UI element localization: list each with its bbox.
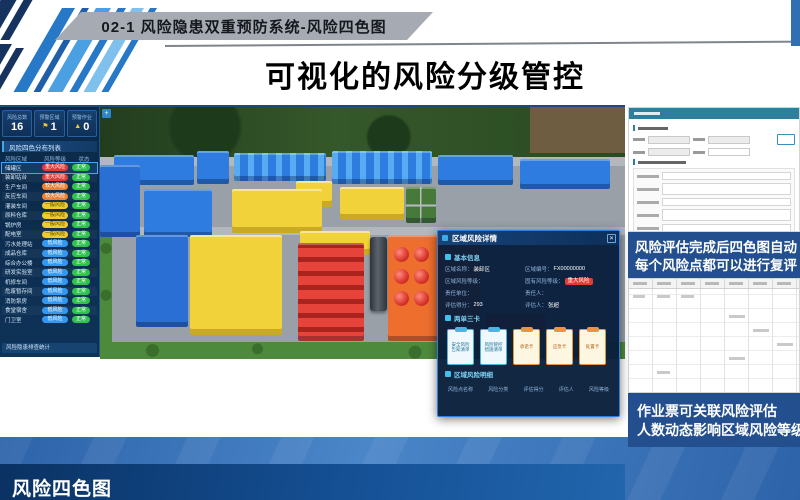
field-label-placeholder (637, 227, 659, 230)
form-panel (633, 168, 795, 232)
info-field: 区域名称 装卸区 (445, 265, 525, 273)
info-card[interactable]: 风险管控措施清单 (480, 329, 507, 365)
storage-tank[interactable] (394, 269, 409, 284)
risk-list: 储罐区 重大风险 正常 装卸站台 重大风险 正常 生产车间 较大风险 正常 (2, 163, 97, 325)
note-auto-update: 风险评估完成后四色图自动 每个风险点都可以进行复评 (628, 232, 800, 278)
building-blue[interactable] (332, 151, 432, 184)
info-field: 责任单位 (445, 289, 525, 297)
card-label: 处置卡 (584, 344, 602, 350)
storage-tank[interactable] (414, 247, 429, 262)
panel-title-bar: 区域风险详情 ✕ (438, 231, 619, 245)
risk-list-row[interactable]: 研发实验室 低风险 正常 (2, 268, 97, 278)
field-value: FX00000000 (554, 266, 586, 272)
field-label: 责任单位 (445, 289, 473, 297)
section-title: 两单三卡 (454, 313, 480, 323)
status-badge: 正常 (72, 240, 90, 247)
risk-level-badge: 重大风险 (42, 174, 68, 181)
info-card[interactable]: 承诺卡 (513, 329, 540, 365)
card-label: 承诺卡 (518, 344, 536, 350)
field-value: 重大风险 (565, 278, 593, 285)
region-name: 生产车间 (2, 183, 38, 191)
note-line: 风险评估完成后四色图自动 (635, 239, 800, 257)
building-blue[interactable] (520, 159, 610, 189)
section-cards: 两单三卡 (445, 313, 612, 323)
risk-level-badge: 一般风险 (42, 221, 68, 228)
building-blue[interactable] (100, 165, 140, 237)
text-input[interactable] (662, 198, 791, 206)
status-badge: 正常 (72, 297, 90, 304)
region-name: 装卸站台 (2, 173, 38, 181)
close-icon[interactable]: ✕ (607, 234, 616, 243)
cards-row: 安全风险告知清单 风险管控措施清单 承诺卡 应急卡 (445, 326, 612, 365)
risk-level-badge: 低风险 (42, 297, 68, 304)
status-badge: 正常 (72, 307, 90, 314)
storage-tank[interactable] (414, 269, 429, 284)
card-label: 安全风险告知清单 (448, 342, 473, 353)
status-badge: 正常 (72, 269, 90, 276)
flag-icon: ⚑ (42, 123, 48, 131)
section-accent (633, 159, 635, 165)
status-badge: 正常 (72, 231, 90, 238)
risk-level-badge: 低风险 (42, 259, 68, 266)
header-divider-line (165, 40, 800, 47)
status-badge: 正常 (72, 221, 90, 228)
alert-icon: ▲ (74, 123, 81, 131)
risk-list-row[interactable]: 锅炉房 一般风险 正常 (2, 220, 97, 230)
column-header-region: 风险区域 (2, 155, 38, 163)
form-header-text-placeholder (634, 112, 660, 115)
field-label-placeholder (637, 175, 659, 178)
building-blue[interactable] (136, 235, 188, 327)
risk-level-badge: 重大风险 (42, 164, 68, 171)
status-badge: 正常 (72, 316, 90, 323)
field-label-placeholder (633, 151, 645, 154)
map-zoom-button[interactable]: + (102, 109, 111, 118)
column-header-status: 状态 (72, 155, 96, 163)
detail-column: 评估人 (559, 386, 574, 393)
field-label: 区域名称 (445, 265, 473, 273)
region-name: 原料仓库 (2, 211, 38, 219)
basic-info-grid: 区域名称 装卸区 区域编号 FX00000000 区域风险等级 (445, 265, 612, 309)
map-terrain-trees (100, 225, 112, 342)
status-badge: 正常 (72, 288, 90, 295)
header-text-placeholder (633, 282, 647, 285)
region-name: 配电室 (2, 230, 38, 238)
building-red[interactable] (298, 243, 364, 341)
stat-risk-total[interactable]: 风险总数 16 (2, 110, 32, 137)
status-badge: 正常 (72, 278, 90, 285)
stat-value: 16 (11, 121, 23, 133)
detail-column: 评估得分 (523, 386, 543, 393)
info-card[interactable]: 安全风险告知清单 (447, 329, 474, 365)
stat-warning-regions[interactable]: 预警区域 ⚑ 1 (34, 110, 64, 137)
text-input[interactable] (662, 172, 791, 180)
header-text-placeholder (777, 282, 791, 285)
cell-text-placeholder (777, 343, 793, 346)
building-yellow[interactable] (340, 187, 404, 220)
section-text-placeholder (638, 127, 668, 130)
risk-list-row[interactable]: 消防泵房 低风险 正常 (2, 296, 97, 306)
region-name: 成品仓库 (2, 249, 38, 257)
building-blue[interactable] (234, 153, 326, 181)
detail-column: 风险分类 (488, 386, 508, 393)
field-label-placeholder (693, 151, 705, 154)
slide: 02-1 风险隐患双重预防系统-风险四色图 可视化的风险分级管控 风险总数 16… (0, 0, 800, 500)
header-text-placeholder (729, 282, 743, 285)
header-text-placeholder (681, 282, 695, 285)
risk-list-row[interactable]: 生产车间 较大风险 正常 (2, 182, 97, 192)
panel-icon (442, 235, 448, 241)
region-name: 储罐区 (2, 164, 38, 172)
detail-column: 风险等级 (589, 386, 609, 393)
region-name: 危废暂存间 (2, 287, 38, 295)
region-name: 灌装车间 (2, 202, 38, 210)
text-input[interactable] (662, 224, 791, 232)
section-text-placeholder (638, 161, 686, 164)
text-input[interactable] (648, 148, 690, 156)
info-field: 评估人 张超 (525, 301, 614, 309)
section-basic-info: 基本信息 (445, 252, 612, 262)
header-text-placeholder (705, 282, 719, 285)
status-badge: 正常 (72, 164, 90, 171)
risk-level-badge: 低风险 (42, 250, 68, 257)
field-label: 评估人 (525, 301, 547, 309)
field-value: 293 (474, 302, 483, 308)
region-name: 研发实验室 (2, 268, 38, 276)
risk-level-badge: 低风险 (42, 269, 68, 276)
status-badge: 正常 (72, 202, 90, 209)
chimney (370, 237, 387, 311)
risk-level-badge: 一般风险 (42, 231, 68, 238)
risk-list-row[interactable]: 门卫室 低风险 正常 (2, 315, 97, 325)
header-text-placeholder (753, 282, 767, 285)
risk-sidebar: 风险总数 16 预警区域 ⚑ 1 预警作业 ▲ 0 (0, 107, 100, 357)
section-detail: 区域风险明细 (445, 369, 612, 379)
risk-level-badge: 低风险 (42, 288, 68, 295)
risk-list-title: 风险四色分布列表 (2, 141, 97, 152)
storage-tank[interactable] (394, 247, 409, 262)
header-text-placeholder (657, 282, 671, 285)
sidebar-footer-label[interactable]: 风险隐患排查统计 (2, 343, 97, 353)
risk-list-row[interactable]: 配电室 一般风险 正常 (2, 230, 97, 240)
risk-list-row[interactable]: 污水处理站 低风险 正常 (2, 239, 97, 249)
query-button[interactable] (777, 134, 795, 145)
stat-value: 1 (51, 121, 57, 133)
text-input[interactable] (708, 136, 750, 144)
risk-list-row[interactable]: 危废暂存间 低风险 正常 (2, 287, 97, 297)
region-name: 食堂宿舍 (2, 306, 38, 314)
info-card[interactable]: 处置卡 (579, 329, 606, 365)
region-name: 门卫室 (2, 316, 38, 324)
risk-level-badge: 一般风险 (42, 202, 68, 209)
textarea-input[interactable] (662, 183, 791, 195)
risk-list-row[interactable]: 灌装车间 一般风险 正常 (2, 201, 97, 211)
field-label: 固有风险等级 (525, 277, 564, 285)
region-name: 机修车间 (2, 278, 38, 286)
field-value: 装卸区 (474, 265, 491, 273)
cell-text-placeholder (729, 315, 745, 318)
status-badge: 正常 (72, 183, 90, 190)
info-field: 固有风险等级 重大风险 (525, 277, 614, 285)
building-blue[interactable] (197, 151, 229, 184)
field-label: 责任人 (525, 289, 547, 297)
info-field: 区域编号 FX00000000 (525, 265, 614, 273)
storage-tank[interactable] (394, 291, 409, 306)
assessment-table-screenshot (628, 278, 800, 393)
map-terrain-field (530, 107, 625, 153)
field-label-placeholder (633, 138, 645, 141)
risk-level-badge: 一般风险 (42, 212, 68, 219)
field-label-placeholder (637, 201, 659, 204)
building-blue[interactable] (144, 189, 212, 237)
region-name: 反应车间 (2, 192, 38, 200)
section-banner: 02-1 风险隐患双重预防系统-风险四色图 (55, 12, 433, 40)
field-label: 区域编号 (525, 265, 553, 273)
assessment-form-screenshot (628, 107, 800, 232)
cell-text-placeholder (681, 295, 694, 298)
info-field: 评估得分 293 (445, 301, 525, 309)
section-title: 基本信息 (454, 252, 480, 262)
building-yellow[interactable] (190, 235, 282, 335)
risk-list-row[interactable]: 成品仓库 低风险 正常 (2, 249, 97, 259)
note-line: 人数动态影响区域风险等级 (637, 421, 800, 440)
risk-list-row[interactable]: 机修车间 低风险 正常 (2, 277, 97, 287)
field-label-placeholder (637, 214, 659, 217)
field-label-placeholder (637, 188, 659, 191)
cell-text-placeholder (657, 295, 670, 298)
region-name: 锅炉房 (2, 221, 38, 229)
cell-text-placeholder (657, 371, 670, 374)
risk-list-row[interactable]: 食堂宿舍 低风险 正常 (2, 306, 97, 316)
storage-tank[interactable] (414, 291, 429, 306)
map-garden (406, 187, 436, 223)
card-label: 风险管控措施清单 (481, 342, 506, 353)
risk-level-badge: 低风险 (42, 316, 68, 323)
risk-list-row[interactable]: 装卸站台 重大风险 正常 (2, 173, 97, 183)
status-badge: 正常 (72, 250, 90, 257)
status-badge: 正常 (72, 193, 90, 200)
note-work-permit: 作业票可关联风险评估 人数动态影响区域风险等级 (628, 393, 800, 447)
field-value: 张超 (548, 301, 559, 309)
stat-value: 0 (83, 121, 89, 133)
risk-level-badge: 低风险 (42, 307, 68, 314)
cell-text-placeholder (633, 295, 645, 298)
field-label: 区域风险等级 (445, 277, 484, 285)
section-accent (633, 125, 635, 131)
risk-list-row[interactable]: 原料仓库 一般风险 正常 (2, 211, 97, 221)
risk-list-row[interactable]: 储罐区 重大风险 正常 (2, 163, 97, 173)
field-label: 评估得分 (445, 301, 473, 309)
risk-level-badge: 较大风险 (42, 193, 68, 200)
section-icon (445, 254, 451, 260)
caption-band: 风险四色图 一张图显示四个等级的风险区域，并可以点击查看该区域风险详情。 (0, 464, 625, 500)
note-line: 每个风险点都可以进行复评 (635, 257, 800, 275)
stats-row: 风险总数 16 预警区域 ⚑ 1 预警作业 ▲ 0 (2, 110, 97, 137)
info-card[interactable]: 应急卡 (546, 329, 573, 365)
cell-text-placeholder (753, 329, 769, 332)
form-header-bar (629, 108, 799, 119)
risk-list-row[interactable]: 综合办公楼 低风险 正常 (2, 258, 97, 268)
page-title: 可视化的风险分级管控 (185, 52, 665, 96)
section-icon (445, 315, 451, 321)
column-header-level: 风险等级 (38, 155, 72, 163)
section-icon (445, 371, 451, 377)
form-section-bar (633, 159, 795, 165)
risk-list-row[interactable]: 反应车间 较大风险 正常 (2, 192, 97, 202)
region-name: 消防泵房 (2, 297, 38, 305)
panel-title: 区域风险详情 (452, 233, 497, 244)
status-badge: 正常 (72, 174, 90, 181)
section-banner-label: 02-1 风险隐患双重预防系统-风险四色图 (101, 16, 386, 37)
risk-level-badge: 低风险 (42, 278, 68, 285)
textarea-input[interactable] (662, 209, 791, 221)
risk-list-header: 风险区域 风险等级 状态 (2, 154, 97, 163)
select-input[interactable] (708, 148, 750, 156)
region-risk-panel: 区域风险详情 ✕ 基本信息 区域名称 装卸区 (437, 230, 620, 417)
card-label: 应急卡 (551, 344, 569, 350)
text-input[interactable] (648, 136, 690, 144)
status-badge: 正常 (72, 212, 90, 219)
app-screenshot: 风险总数 16 预警区域 ⚑ 1 预警作业 ▲ 0 (0, 105, 625, 357)
building-yellow[interactable] (232, 189, 322, 233)
stat-warning-jobs[interactable]: 预警作业 ▲ 0 (67, 110, 97, 137)
form-section-bar (633, 125, 795, 131)
note-line: 作业票可关联风险评估 (637, 402, 800, 421)
info-field: 区域风险等级 (445, 277, 525, 285)
region-name: 综合办公楼 (2, 259, 38, 267)
building-blue[interactable] (438, 155, 513, 185)
status-badge: 正常 (72, 259, 90, 266)
right-edge-bar (791, 0, 800, 46)
risk-level-badge: 低风险 (42, 240, 68, 247)
detail-table-header: 风险点名称风险分类评估得分评估人风险等级 (445, 382, 612, 393)
field-label-placeholder (693, 138, 705, 141)
info-field: 责任人 (525, 289, 614, 297)
caption-title: 风险四色图 (12, 474, 112, 500)
detail-column: 风险点名称 (448, 386, 473, 393)
cell-text-placeholder (729, 357, 745, 360)
section-title: 区域风险明细 (454, 369, 493, 379)
risk-level-badge: 较大风险 (42, 183, 68, 190)
region-name: 污水处理站 (2, 240, 38, 248)
